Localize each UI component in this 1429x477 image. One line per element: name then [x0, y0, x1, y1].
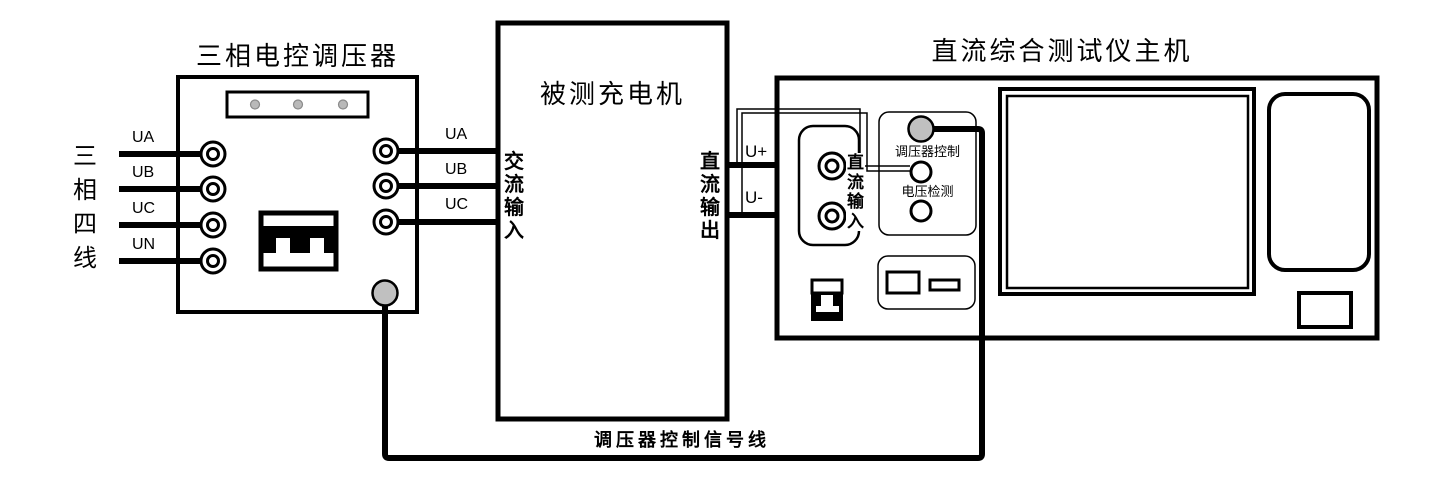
indicator-dot-3 — [339, 100, 348, 109]
tester-control-connector — [909, 117, 934, 142]
tester-title: 直流综合测试仪主机 — [930, 37, 1194, 67]
charger-title: 被测充电机 — [498, 80, 727, 110]
output-label-ub: UB — [445, 161, 467, 179]
regulator-output-terminals — [374, 139, 398, 234]
wiring-diagram: 三相电控调压器 被测充电机 直流综合测试仪主机 三相四线 UA UB UC UN… — [0, 0, 1429, 477]
sense-terminal-2 — [911, 201, 931, 221]
indicator-dot-1 — [251, 100, 260, 109]
regulator-control-label: 调压器控制 — [879, 145, 976, 160]
signal-line-label: 调压器控制信号线 — [560, 430, 804, 451]
regulator-title: 三相电控调压器 — [178, 42, 417, 72]
tester-breaker-icon — [811, 280, 843, 321]
input-label-ua: UA — [132, 129, 154, 147]
voltage-detect-label: 电压检测 — [879, 185, 976, 200]
regulator-control-connector — [373, 281, 398, 306]
supply-label: 三相四线 — [72, 140, 98, 276]
dc-plus-label: U+ — [745, 142, 767, 162]
dc-output-label: 直流输出 — [699, 151, 721, 243]
output-label-uc: UC — [445, 196, 468, 214]
indicator-dot-2 — [294, 100, 303, 109]
dc-input-label: 直流输入 — [846, 153, 865, 231]
input-label-uc: UC — [132, 200, 155, 218]
tester-screen-inner — [1007, 96, 1248, 288]
ac-input-label: 交流输入 — [503, 151, 525, 243]
output-label-ua: UA — [445, 126, 467, 144]
dc-minus-label: U- — [745, 188, 763, 208]
sense-terminal-1 — [911, 162, 931, 182]
input-label-ub: UB — [132, 164, 154, 182]
regulator-breaker-icon — [261, 213, 336, 269]
input-label-un: UN — [132, 236, 155, 254]
